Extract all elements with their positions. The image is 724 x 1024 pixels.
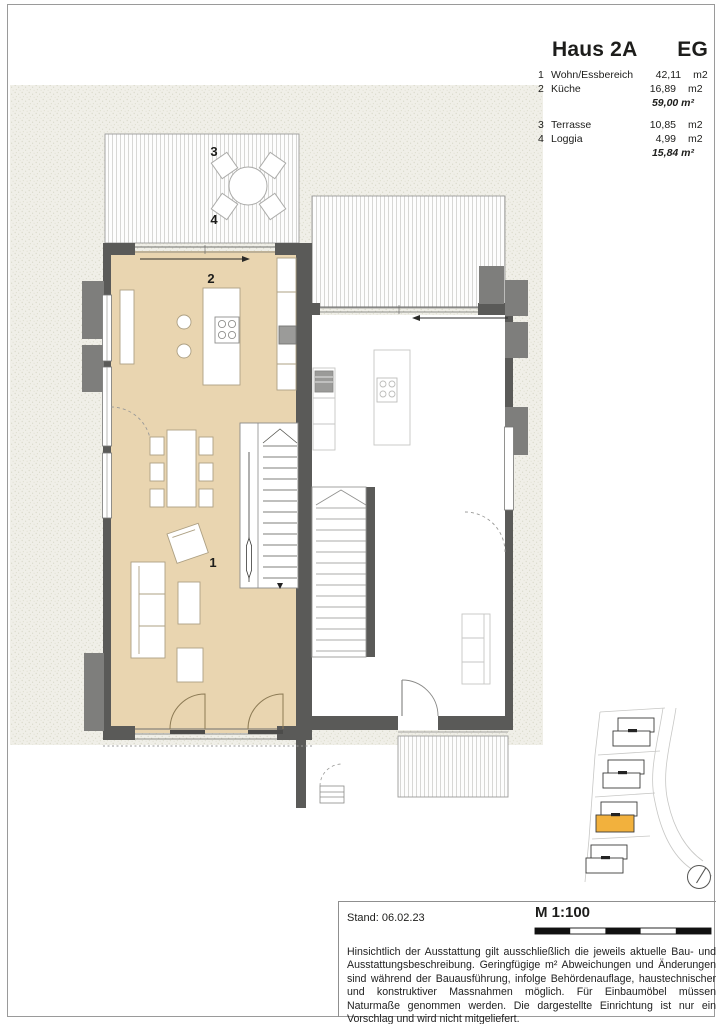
- row-value: 42,11: [633, 69, 681, 83]
- row-label: Küche: [551, 83, 628, 97]
- site-plan: [585, 708, 712, 889]
- site-building-highlighted: [596, 815, 634, 832]
- row-value: 4,99: [628, 133, 676, 147]
- legend-row-terrasse: 3 Terrasse 10,85 m2: [538, 119, 708, 133]
- titleblock-divider: [338, 901, 716, 902]
- legend-row-kueche: 2 Küche 16,89 m2: [538, 83, 708, 97]
- scale-text: M 1:100: [535, 904, 590, 921]
- floor-title: EG: [677, 38, 708, 62]
- row-unit: m2: [676, 83, 708, 97]
- site-building-pair-1: [613, 718, 654, 746]
- site-building-pair-2: [603, 760, 644, 788]
- room-label-loggia: 4: [210, 212, 218, 227]
- legend-row-wohn: 1 Wohn/Essbereich 42,11 m2: [538, 69, 708, 83]
- room-label-kueche: 2: [207, 271, 214, 286]
- row-num: 2: [538, 83, 551, 97]
- area-legend: Haus 2A EG 1 Wohn/Essbereich 42,11 m2 2 …: [538, 38, 708, 160]
- revision-date: Stand: 06.02.23: [347, 912, 425, 924]
- legend-row-loggia: 4 Loggia 4,99 m2: [538, 133, 708, 147]
- room-label-terrasse: 3: [210, 144, 217, 159]
- row-unit: m2: [676, 133, 708, 147]
- row-unit: m2: [676, 119, 708, 133]
- terrace-left-deck: [105, 134, 299, 243]
- row-label: Loggia: [551, 133, 628, 147]
- north-arrow-icon: [688, 866, 711, 889]
- site-building-pair-4: [586, 845, 627, 873]
- row-num: 3: [538, 119, 551, 133]
- row-unit: m2: [681, 69, 713, 83]
- titleblock-left-edge: [338, 901, 339, 1017]
- stairs-left-unit: [240, 423, 298, 589]
- row-label: Wohn/Essbereich: [551, 69, 633, 83]
- house-title: Haus 2A: [552, 38, 637, 62]
- drawing-sheet: 3 4 2 1: [0, 0, 724, 1024]
- row-num: 1: [538, 69, 551, 83]
- stairs-right-unit: [312, 487, 366, 657]
- legend-title: Haus 2A EG: [538, 38, 708, 62]
- subtotal-living: 59,00 m²: [538, 96, 708, 110]
- terrace-bottom-deck: [398, 736, 508, 797]
- row-num: 4: [538, 133, 551, 147]
- dining-set: [150, 430, 213, 507]
- site-building-pair-3: [596, 802, 637, 832]
- row-value: 10,85: [628, 119, 676, 133]
- terrace-right-deck: [312, 196, 505, 308]
- room-label-wohnen: 1: [209, 555, 216, 570]
- subtotal-outdoor: 15,84 m²: [538, 146, 708, 160]
- disclaimer-text: Hinsichtlich der Ausstattung gilt aussch…: [347, 946, 716, 1024]
- scale-bar: [535, 928, 711, 934]
- row-label: Terrasse: [551, 119, 628, 133]
- row-value: 16,89: [628, 83, 676, 97]
